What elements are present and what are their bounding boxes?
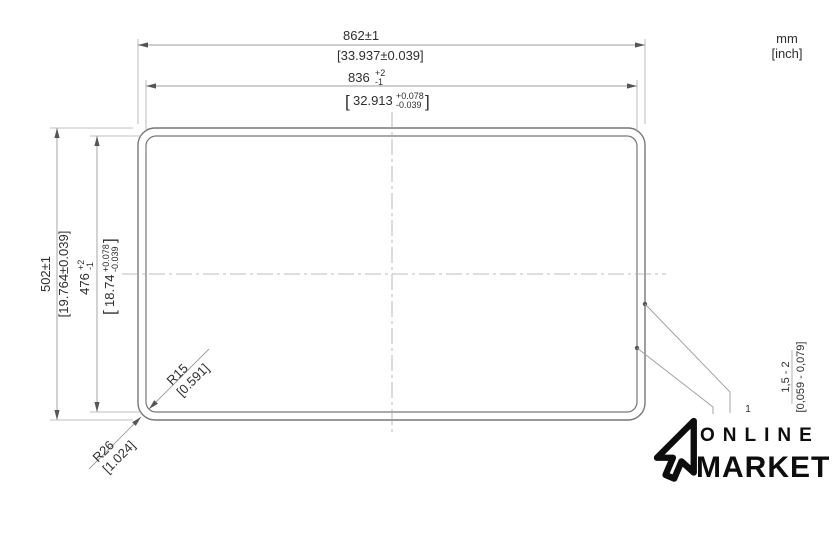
- dim-height-outer-inch: [19.764±0.039]: [56, 231, 71, 318]
- dim-height-inner: 476 +2 -1 [ 18.74 +0.078 -0.039 ]: [76, 136, 120, 412]
- dim-height-inner-inch-tol-minus: -0.039: [110, 246, 120, 272]
- thickness-leaders: 1 1,5 - 2 [0,059 - 0,079]: [635, 302, 807, 415]
- dim-height-inner-tol-minus: -1: [85, 262, 95, 270]
- dim-height-inner-inch-open: [: [100, 310, 119, 315]
- dim-width-outer: 862±1 [33.937±0.039]: [138, 28, 645, 63]
- thickness-mm: 1,5 - 2: [780, 361, 792, 392]
- dim-height-outer: 502±1 [19.764±0.039]: [38, 128, 71, 420]
- cursor-icon: [657, 421, 694, 479]
- technical-drawing-page: 862±1 [33.937±0.039] 836 +2 -1 [ 32.913 …: [0, 0, 840, 539]
- dim-width-inner-inch-tol-minus: -0.039: [396, 100, 422, 110]
- dim-height-outer-mm: 502±1: [38, 256, 53, 292]
- dim-width-inner-mm: 836: [348, 70, 370, 85]
- drawing-canvas: 862±1 [33.937±0.039] 836 +2 -1 [ 32.913 …: [0, 0, 840, 539]
- units-note: mm [inch]: [771, 31, 802, 61]
- logo-text-bottom: MARKET: [696, 451, 830, 484]
- dim-width-inner-inch: 32.913: [353, 93, 393, 108]
- dim-width-inner-inch-close: ]: [425, 92, 430, 111]
- logo-text-top: ONLINE: [700, 425, 820, 446]
- dim-width-outer-inch: [33.937±0.039]: [337, 48, 424, 63]
- dim-width-inner-inch-open: [: [345, 92, 350, 111]
- thickness-inch: [0,059 - 0,079]: [795, 342, 807, 413]
- units-metric-label: mm: [776, 31, 798, 46]
- dim-radius-inner: R15 [0.591]: [147, 349, 212, 411]
- units-imperial-label: [inch]: [771, 46, 802, 61]
- dim-height-inner-inch-close: ]: [100, 238, 119, 243]
- dim-height-inner-mm: 476: [77, 273, 92, 295]
- dim-height-inner-inch: 18.74: [102, 274, 117, 307]
- dim-width-inner-tol-minus: -1: [375, 77, 383, 87]
- dim-radius-outer: R26 [1.024]: [89, 415, 143, 476]
- dim-width-inner: 836 +2 -1 [ 32.913 +0.078 -0.039 ]: [146, 68, 637, 111]
- dim-width-outer-mm: 862±1: [343, 28, 379, 43]
- thickness-ref-number: 1: [745, 404, 751, 415]
- online-market-logo: ONLINE MARKET: [657, 421, 830, 484]
